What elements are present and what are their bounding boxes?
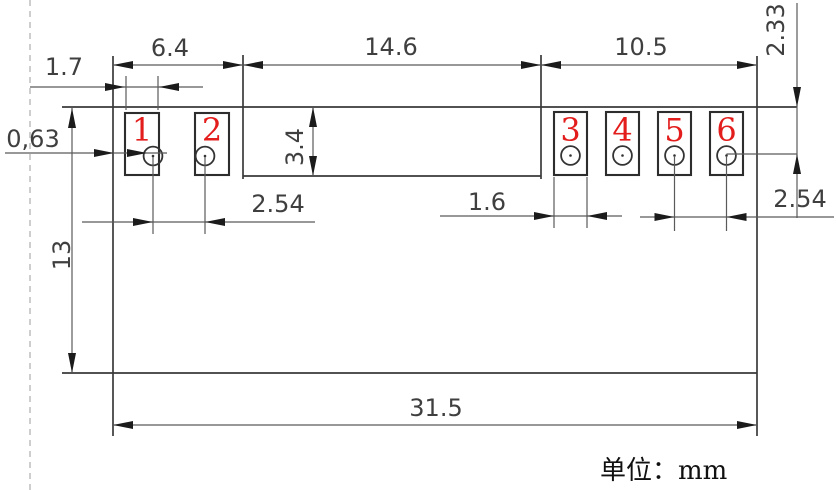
- arrowhead: [309, 156, 317, 176]
- arrowhead: [94, 149, 114, 157]
- arrowhead: [737, 421, 757, 429]
- arrowhead: [737, 61, 757, 69]
- dim-label-2-54-right: 2.54: [773, 185, 826, 213]
- arrowhead: [521, 61, 541, 69]
- arrowhead: [133, 218, 153, 226]
- dim-label-1-7: 1.7: [45, 53, 83, 81]
- arrowhead: [205, 218, 225, 226]
- arrowhead: [113, 421, 133, 429]
- dimension-drawing-canvas: 6.4 14.6 10.5 1.7 0,63 3.4 2.54 1.6 2.54…: [0, 0, 836, 490]
- pad-number-5: 5: [664, 111, 684, 149]
- dim-label-2-54-left: 2.54: [251, 190, 304, 218]
- dim-label-31-5: 31.5: [409, 394, 462, 422]
- dim-label-0-63: 0,63: [6, 125, 59, 153]
- arrowhead: [655, 213, 675, 221]
- arrowhead: [541, 61, 561, 69]
- arrowhead: [534, 212, 554, 220]
- arrowhead: [727, 213, 747, 221]
- dim-label-10-5: 10.5: [614, 33, 667, 61]
- arrowhead: [793, 87, 801, 107]
- hole-4-center-mark: [621, 154, 624, 157]
- pad-number-4: 4: [612, 111, 632, 149]
- dim-label-2-33: 2.33: [762, 3, 790, 56]
- arrowhead: [793, 154, 801, 174]
- hole-2-center-mark: [204, 155, 207, 158]
- arrowhead: [243, 61, 263, 69]
- technical-drawing-page: 6.4 14.6 10.5 1.7 0,63 3.4 2.54 1.6 2.54…: [0, 0, 836, 490]
- arrowhead: [113, 61, 133, 69]
- arrowhead: [223, 61, 243, 69]
- hole-1-center-mark: [152, 155, 155, 158]
- extension-lines: [126, 76, 797, 234]
- hole-3-center-mark: [569, 154, 572, 157]
- pad-number-2: 2: [202, 111, 222, 149]
- arrowhead: [587, 212, 607, 220]
- arrowhead: [159, 83, 179, 91]
- arrowhead: [309, 107, 317, 127]
- arrowhead: [68, 108, 76, 128]
- unit-note: 单位：mm: [600, 456, 727, 486]
- arrowhead: [68, 353, 76, 373]
- dim-label-13: 13: [48, 240, 76, 271]
- dim-label-1-6: 1.6: [468, 188, 506, 216]
- dim-label-6-4: 6.4: [151, 34, 189, 62]
- arrowhead: [105, 83, 125, 91]
- pad-number-3: 3: [560, 111, 580, 149]
- pad-number-6: 6: [716, 111, 736, 149]
- dim-label-14-6: 14.6: [364, 33, 417, 61]
- dim-label-3-4: 3.4: [281, 128, 309, 166]
- pad-number-1: 1: [132, 111, 152, 149]
- pad-holes: [144, 146, 736, 165]
- pad-numbers: 1 2 3 4 5 6: [132, 111, 737, 149]
